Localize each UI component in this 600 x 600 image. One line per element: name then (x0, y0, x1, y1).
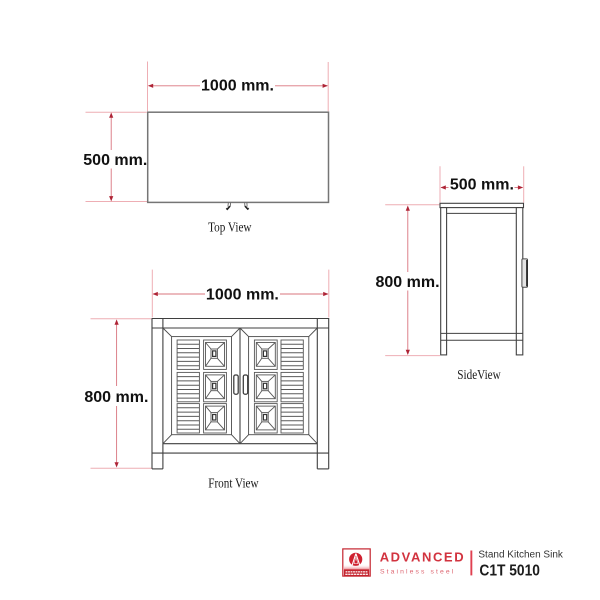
svg-text:Top View: Top View (208, 219, 252, 234)
svg-text:800 mm.: 800 mm. (375, 274, 439, 291)
svg-text:1000 mm.: 1000 mm. (206, 287, 279, 304)
svg-text:Front View: Front View (208, 475, 259, 490)
svg-text:Stainless steel: Stainless steel (380, 568, 455, 575)
svg-text:500 mm.: 500 mm. (450, 176, 514, 193)
svg-text:Stand Kitchen Sink: Stand Kitchen Sink (478, 549, 563, 560)
svg-text:C1T 5010: C1T 5010 (479, 563, 540, 580)
svg-text:800 mm.: 800 mm. (84, 389, 148, 406)
svg-text:1000 mm.: 1000 mm. (201, 78, 274, 95)
svg-text:500 mm.: 500 mm. (83, 152, 147, 169)
svg-text:SideView: SideView (457, 367, 501, 382)
svg-text:ADVANCED: ADVANCED (380, 549, 466, 564)
